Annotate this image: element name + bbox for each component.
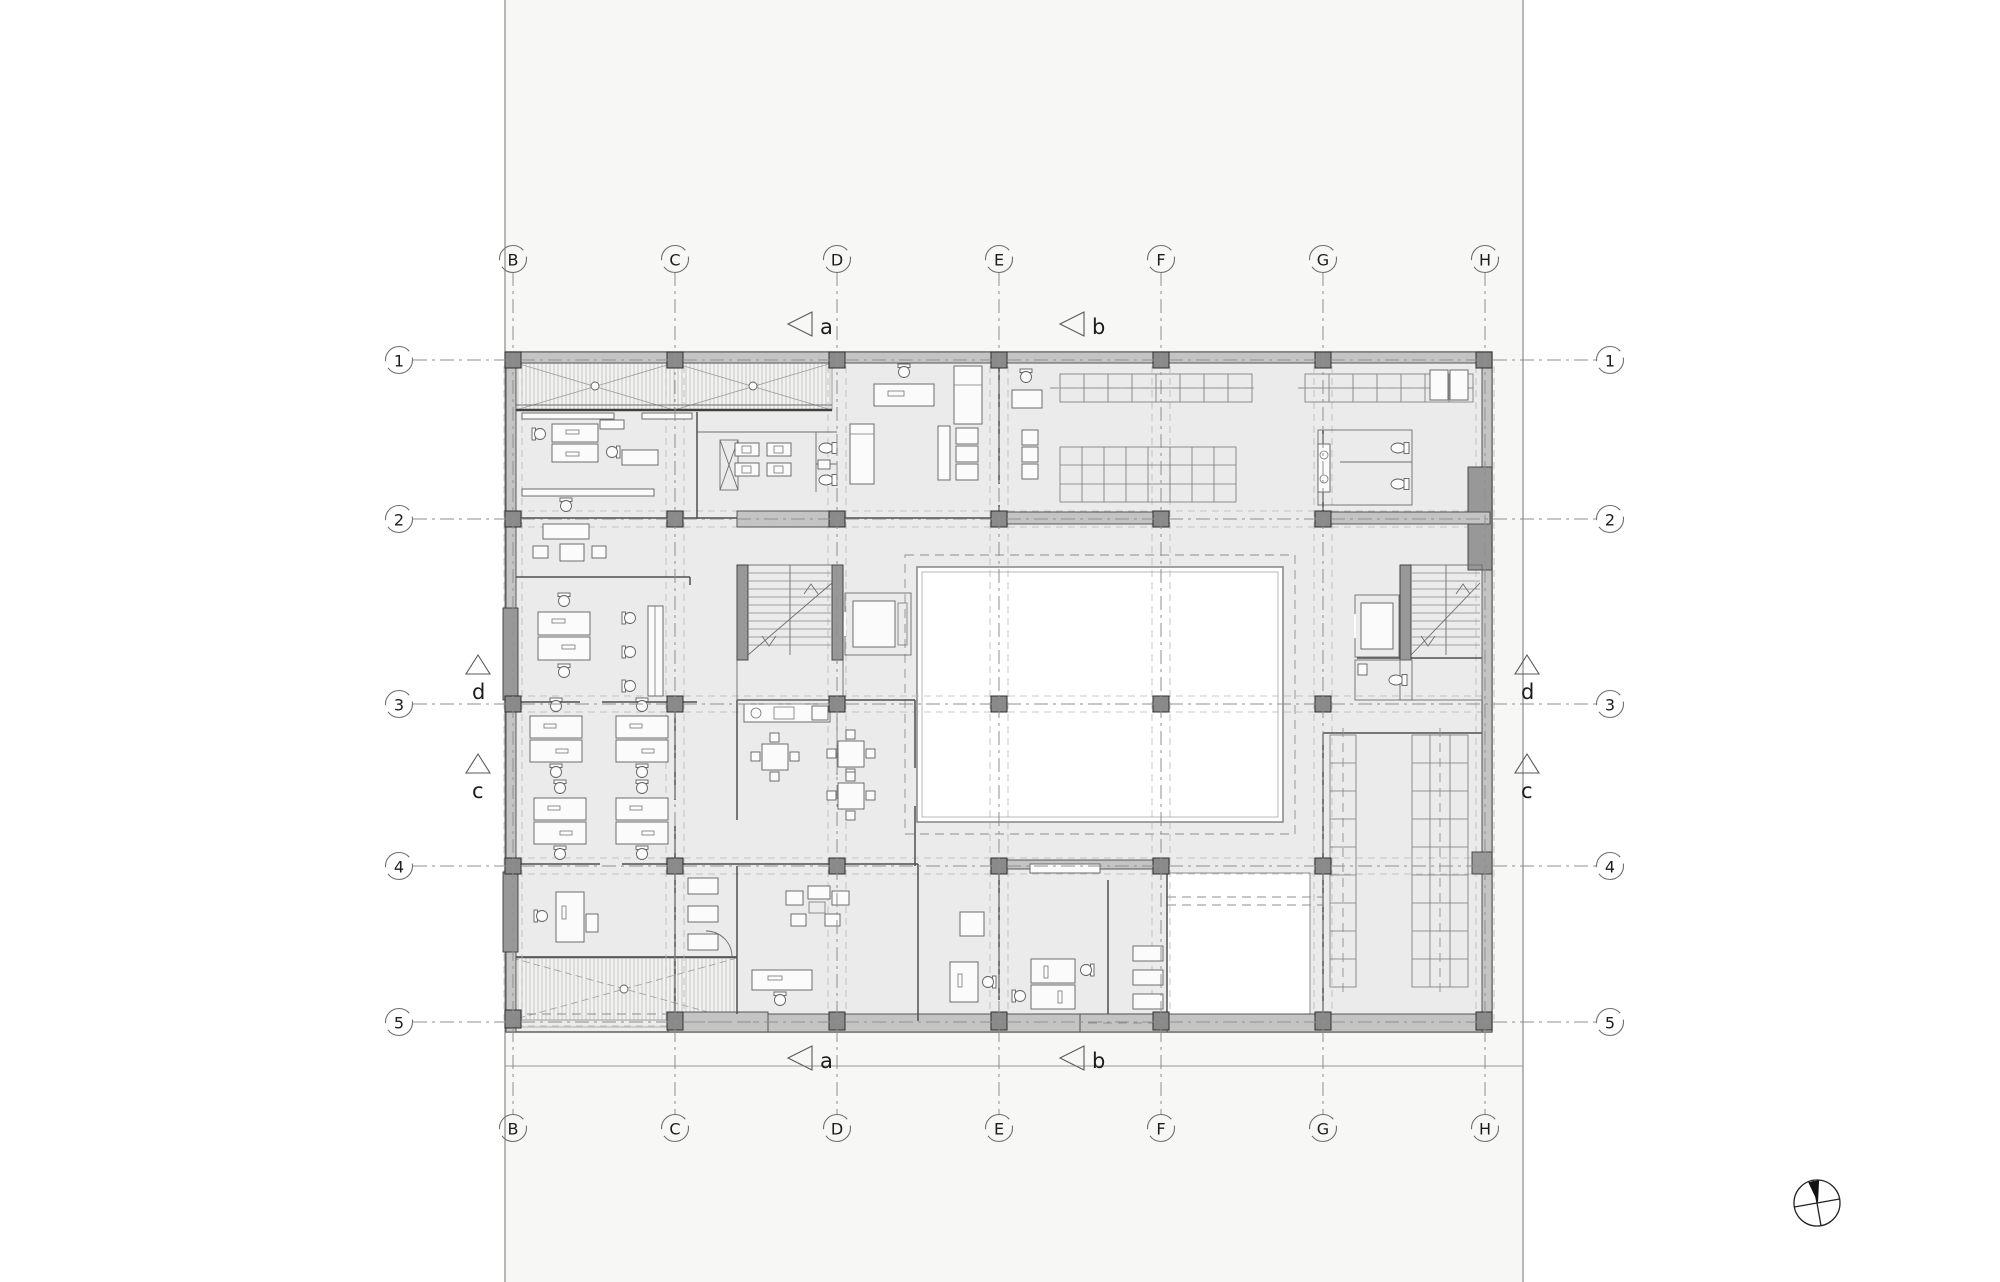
section-arrow-icon <box>466 754 490 773</box>
terrace-north <box>516 363 832 410</box>
grid-label: 4 <box>394 858 404 877</box>
section-arrow-icon <box>466 655 490 674</box>
north-arrow-compass-icon <box>1790 1176 1843 1229</box>
grid-label: 2 <box>1605 511 1615 530</box>
grid-label: D <box>831 251 843 270</box>
grid-label: C <box>669 1120 680 1139</box>
grid-label: 5 <box>1605 1014 1615 1033</box>
grid-label: G <box>1317 251 1329 270</box>
section-label: b <box>1092 1049 1105 1073</box>
grid-label: B <box>508 1120 519 1139</box>
grid-label: C <box>669 251 680 270</box>
section-label: b <box>1092 315 1105 339</box>
grid-label: F <box>1156 1120 1165 1139</box>
grid-label: F <box>1156 251 1165 270</box>
grid-label: 3 <box>1605 696 1615 715</box>
floor-opening <box>1167 873 1310 1015</box>
grid-label: 1 <box>394 352 404 371</box>
section-label: c <box>472 779 484 803</box>
section-label: d <box>1521 680 1534 704</box>
section-label: a <box>820 1049 833 1073</box>
elevator-east <box>1355 595 1399 657</box>
grid-label: H <box>1479 251 1491 270</box>
grid-label: 5 <box>394 1014 404 1033</box>
grid-label: E <box>994 251 1004 270</box>
grid-label: 1 <box>1605 352 1615 371</box>
grid-bubble-row-right: 1 2 3 4 5 <box>1597 347 1624 1036</box>
wall-east <box>1482 352 1492 1032</box>
grid-label: H <box>1479 1120 1491 1139</box>
section-label: c <box>1521 779 1533 803</box>
grid-label: 3 <box>394 696 404 715</box>
grid-label: B <box>508 251 519 270</box>
section-marker-c-left: c <box>466 754 490 803</box>
courtyard <box>917 567 1283 822</box>
grid-label: 2 <box>394 511 404 530</box>
section-label: a <box>820 315 833 339</box>
floor-plan-drawing: B C D E F G H B C D E F G H 1 2 3 4 5 1 … <box>0 0 2000 1282</box>
grid-label: 4 <box>1605 858 1615 877</box>
grid-label: D <box>831 1120 843 1139</box>
grid-label: E <box>994 1120 1004 1139</box>
grid-label: G <box>1317 1120 1329 1139</box>
section-label: d <box>472 680 485 704</box>
section-marker-d-left: d <box>466 655 490 704</box>
grid-bubble-row-left: 1 2 3 4 5 <box>386 347 413 1036</box>
